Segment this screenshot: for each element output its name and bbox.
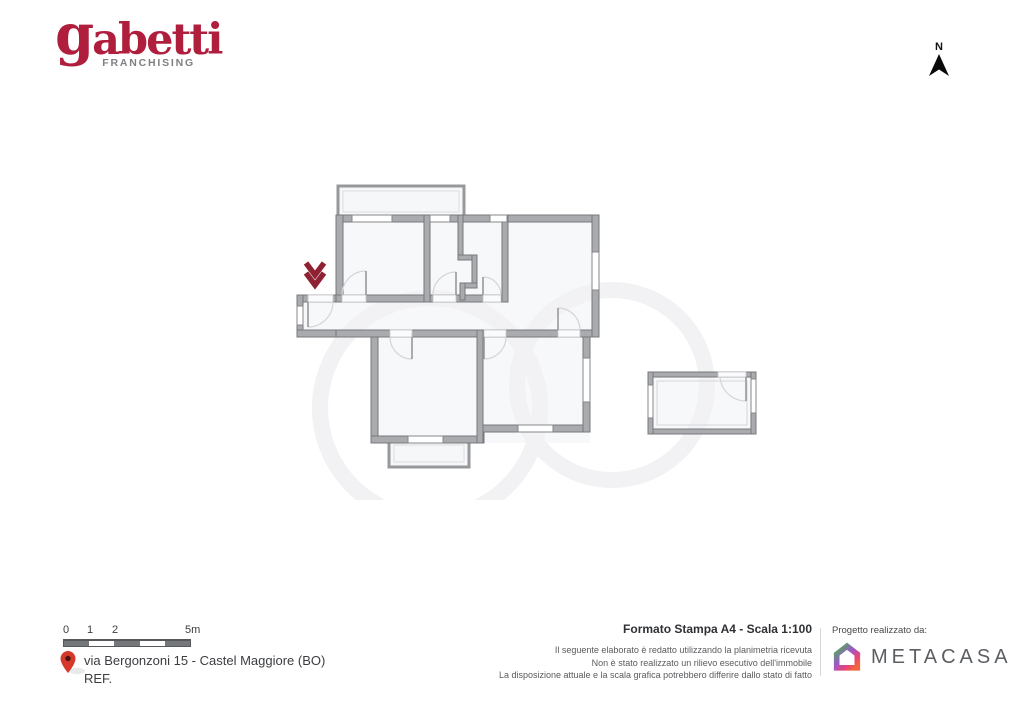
metacasa-wordmark: METACASA xyxy=(871,646,1012,669)
print-format-title: Formato Stampa A4 - Scala 1:100 xyxy=(392,622,812,636)
disclaimer: Il seguente elaborato è redatto utilizza… xyxy=(392,644,812,682)
scale-label-0: 0 xyxy=(63,624,69,636)
metacasa-logo-icon xyxy=(832,642,862,672)
scale-label-5m: 5m xyxy=(185,624,200,636)
north-arrow-icon xyxy=(929,54,949,76)
disclaimer-line: La disposizione attuale e la scala grafi… xyxy=(392,669,812,682)
property-address: via Bergonzoni 15 - Castel Maggiore (BO)… xyxy=(84,652,325,687)
address-line: via Bergonzoni 15 - Castel Maggiore (BO) xyxy=(84,652,325,670)
print-info: Formato Stampa A4 - Scala 1:100 Il segue… xyxy=(392,622,812,682)
disclaimer-line: Non è stato realizzato un rilievo esecut… xyxy=(392,657,812,670)
scale-bar-ruler xyxy=(63,639,191,647)
credits-label: Progetto realizzato da: xyxy=(832,625,1012,636)
scale-label-2: 2 xyxy=(112,624,118,636)
north-label: N xyxy=(925,41,953,54)
scale-bar: 0 1 2 5m xyxy=(63,624,203,647)
entrance-arrow-icon xyxy=(306,263,324,285)
credits: Progetto realizzato da: METACASA xyxy=(832,625,1012,672)
disclaimer-line: Il seguente elaborato è redatto utilizza… xyxy=(392,644,812,657)
gabetti-logo: gabetti FRANCHISING xyxy=(55,10,195,69)
scale-label-1: 1 xyxy=(87,624,93,636)
footer-divider xyxy=(820,628,821,676)
address-ref: REF. xyxy=(84,670,325,688)
north-compass: N xyxy=(925,41,953,81)
floor-plan xyxy=(250,150,800,500)
floor-plan-sheet: gabetti FRANCHISING N xyxy=(0,0,1018,720)
